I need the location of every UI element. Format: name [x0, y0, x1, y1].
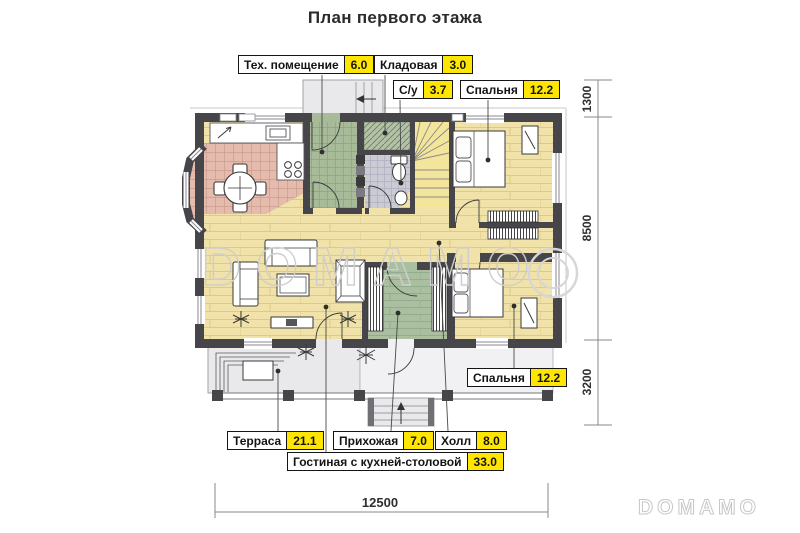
room-name: Гостиная с кухней-столовой: [288, 453, 467, 470]
entrance-steps: [368, 398, 434, 426]
room-label-tech: Тех. помещение 6.0: [238, 55, 374, 74]
toilet-icon: [391, 156, 407, 181]
room-area-badge: 12.2: [523, 81, 559, 98]
room-name: Тех. помещение: [239, 56, 344, 73]
dimension-right-bottom: 3200: [580, 353, 594, 411]
room-label-storage: Кладовая 3.0: [374, 55, 473, 74]
mirror-top: [522, 126, 538, 154]
terrace-table: [243, 361, 273, 380]
room-area-badge: 3.7: [423, 81, 453, 98]
storage-floor: [364, 122, 410, 150]
room-area-badge: 3.0: [442, 56, 472, 73]
page-title: План первого этажа: [0, 8, 790, 28]
room-label-hall: Холл 8.0: [435, 431, 507, 450]
room-name: Спальня: [468, 369, 530, 386]
bed-top: [453, 131, 505, 187]
back-porch: [303, 80, 383, 118]
washbasin-icon: [395, 191, 407, 205]
room-area-badge: 12.2: [530, 369, 566, 386]
room-label-bathroom: С/у 3.7: [393, 80, 453, 99]
room-area-badge: 6.0: [344, 56, 374, 73]
dimension-right-middle: 8500: [580, 199, 594, 257]
bed-bottom: [452, 269, 503, 317]
room-name: Терраса: [228, 432, 286, 449]
sofa: [265, 240, 317, 266]
floor-plan-page: План первого этажа Тех. помещение 6.0 Кл…: [0, 0, 800, 533]
room-label-bedroom-bottom: Спальня 12.2: [467, 368, 567, 387]
coffee-table: [277, 274, 309, 296]
room-label-terrace: Терраса 21.1: [227, 431, 324, 450]
tv-bench: [271, 317, 313, 328]
room-area-badge: 33.0: [467, 453, 503, 470]
fireplace: [336, 260, 365, 302]
room-label-hallway: Прихожая 7.0: [333, 431, 434, 450]
dimension-right-top: 1300: [580, 70, 594, 128]
room-label-bedroom-top: Спальня 12.2: [460, 80, 560, 99]
dimension-bottom-width: 12500: [340, 495, 420, 510]
room-label-living: Гостиная с кухней-столовой 33.0: [287, 452, 504, 471]
room-area-badge: 7.0: [403, 432, 433, 449]
room-name: Прихожая: [334, 432, 403, 449]
room-name: Холл: [436, 432, 476, 449]
mirror-bottom: [521, 298, 537, 328]
room-area-badge: 8.0: [476, 432, 506, 449]
room-name: Спальня: [461, 81, 523, 98]
room-name: С/у: [394, 81, 423, 98]
tech-room-floor: [310, 122, 357, 208]
armchair: [233, 262, 258, 306]
room-area-badge: 21.1: [286, 432, 322, 449]
room-name: Кладовая: [375, 56, 442, 73]
